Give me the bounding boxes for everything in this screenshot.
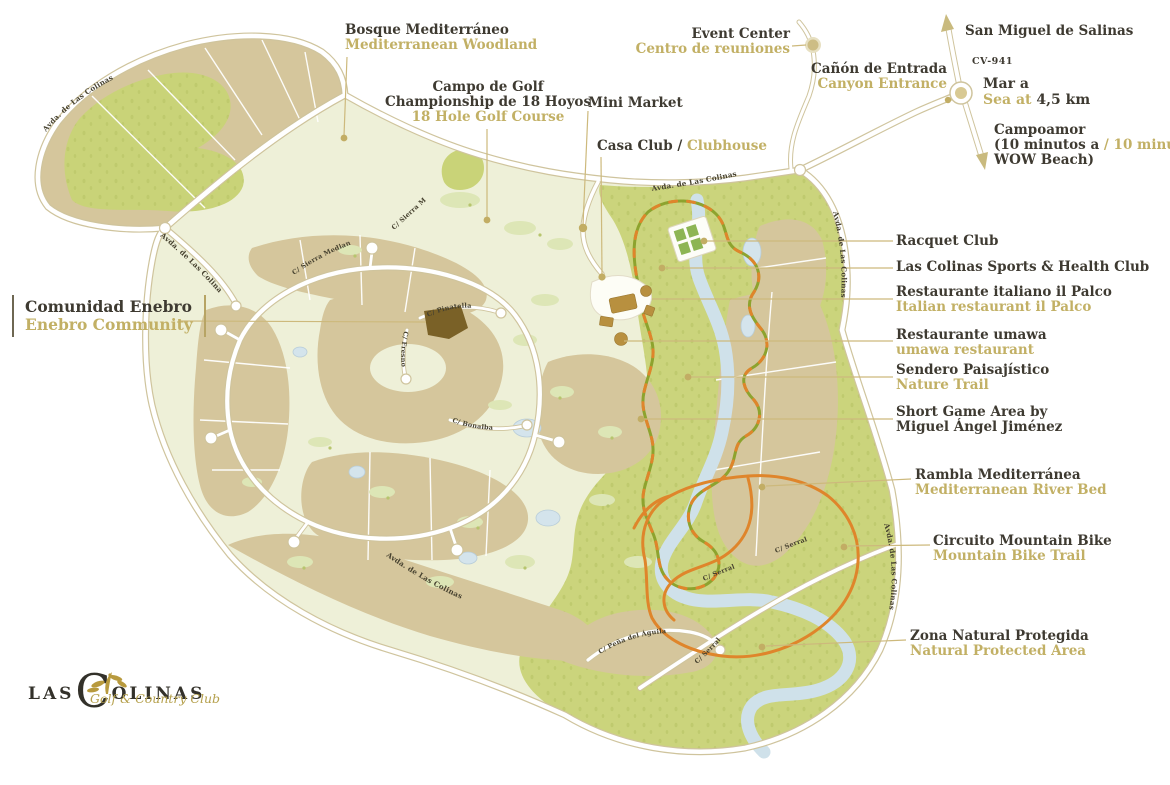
callout-mtb: Circuito Mountain Bike Mountain Bike Tra… [933,534,1112,564]
event-center-building [805,37,821,53]
las-colinas-logo: LASCOLINAS Golf & Country Club [28,684,220,706]
callout-sendero-en: Nature Trail [896,378,1049,393]
callout-bosque-en: Mediterranean Woodland [345,38,537,53]
callout-sea-es: Mar a [983,77,1090,93]
callout-canyon-entrance: Cañón de Entrada Canyon Entrance [775,62,947,92]
callout-rambla-es: Rambla Mediterránea [915,468,1107,483]
callout-campoamor-en: / 10 minutes to [1104,137,1170,153]
callout-il-palco-en: Italian restaurant il Palco [896,300,1112,315]
arrow-north-icon [941,14,954,32]
callout-casa-club-en: Clubhouse [687,138,767,154]
callout-san-miguel-label: San Miguel de Salinas [965,24,1133,39]
callout-rambla: Rambla Mediterránea Mediterranean River … [915,468,1107,498]
callout-bosque-es: Bosque Mediterráneo [345,23,537,38]
callout-il-palco-es: Restaurante italiano il Palco [896,285,1112,300]
callout-racquet-club: Racquet Club [896,234,998,249]
callout-mini-market: Mini Market [588,96,683,111]
callout-road-code: CV-941 [972,57,1013,68]
las-colinas-resort-map-page: { "brand": { "word1": "LAS", "initial": … [0,0,1170,785]
callout-umawa-es: Restaurante umawa [896,328,1047,343]
callout-sea-en: Sea at [983,92,1032,108]
callout-campoamor: Campoamor (10 minutos a / 10 minutes to … [994,123,1170,168]
callout-campoamor-name: Campoamor [994,123,1170,138]
callout-campo: Campo de Golf Championship de 18 Hoyos 1… [378,80,598,125]
callout-mini-market-label: Mini Market [588,96,683,111]
callout-il-palco: Restaurante italiano il Palco Italian re… [896,285,1112,315]
callout-short-game-line2: Miguel Ángel Jiménez [896,420,1062,435]
callout-enebro-community: Comunidad Enebro Enebro Community [12,295,206,337]
road-code-label: CV-941 [972,57,1013,68]
callout-enebro-es: Comunidad Enebro [25,297,192,316]
callout-racquet-label: Racquet Club [896,234,998,249]
callout-zona-en: Natural Protected Area [910,644,1089,659]
callout-casa-club: Casa Club / Clubhouse [597,139,767,154]
callout-zona-es: Zona Natural Protegida [910,629,1089,644]
callout-short-game-line1: Short Game Area by [896,405,1062,420]
callout-sendero-es: Sendero Paisajístico [896,363,1049,378]
callout-mtb-es: Circuito Mountain Bike [933,534,1112,549]
callout-sea-distance: Mar a Sea at 4,5 km [983,77,1090,108]
callout-mtb-en: Mountain Bike Trail [933,549,1112,564]
callout-umawa-en: umawa restaurant [896,343,1047,358]
callout-casa-club-es: Casa Club / [597,138,682,154]
callout-campo-es2: Championship de 18 Hoyos [378,95,598,110]
callout-campo-en: 18 Hole Golf Course [378,110,598,125]
callout-sports-club: Las Colinas Sports & Health Club [896,260,1149,275]
callout-event-center-es: Centro de reuniones [620,42,790,57]
callout-rambla-en: Mediterranean River Bed [915,483,1107,498]
olive-branch-icon [80,670,132,696]
callout-enebro-en: Enebro Community [25,316,193,334]
callout-bosque: Bosque Mediterráneo Mediterranean Woodla… [345,23,537,53]
callout-canyon-en: Canyon Entrance [775,77,947,92]
callout-short-game: Short Game Area by Miguel Ángel Jiménez [896,405,1062,435]
arrow-south-icon [976,152,988,170]
callout-canyon-es: Cañón de Entrada [775,62,947,77]
logo-word1: LAS [28,684,74,704]
callout-campoamor-end: WOW Beach) [994,153,1170,168]
callout-sendero: Sendero Paisajístico Nature Trail [896,363,1049,393]
callout-campo-es1: Campo de Golf [378,80,598,95]
callout-zona: Zona Natural Protegida Natural Protected… [910,629,1089,659]
callout-sea-distance-value: 4,5 km [1036,92,1090,108]
callout-umawa: Restaurante umawa umawa restaurant [896,328,1047,358]
callout-campoamor-es: (10 minutos a [994,137,1099,153]
entrance-roundabout [950,82,972,104]
callout-event-center: Event Center Centro de reuniones [620,27,790,57]
callout-san-miguel: San Miguel de Salinas [965,24,1133,39]
callout-sports-label: Las Colinas Sports & Health Club [896,260,1149,275]
callout-event-center-en: Event Center [620,27,790,42]
golf-green-pocket [370,344,446,392]
